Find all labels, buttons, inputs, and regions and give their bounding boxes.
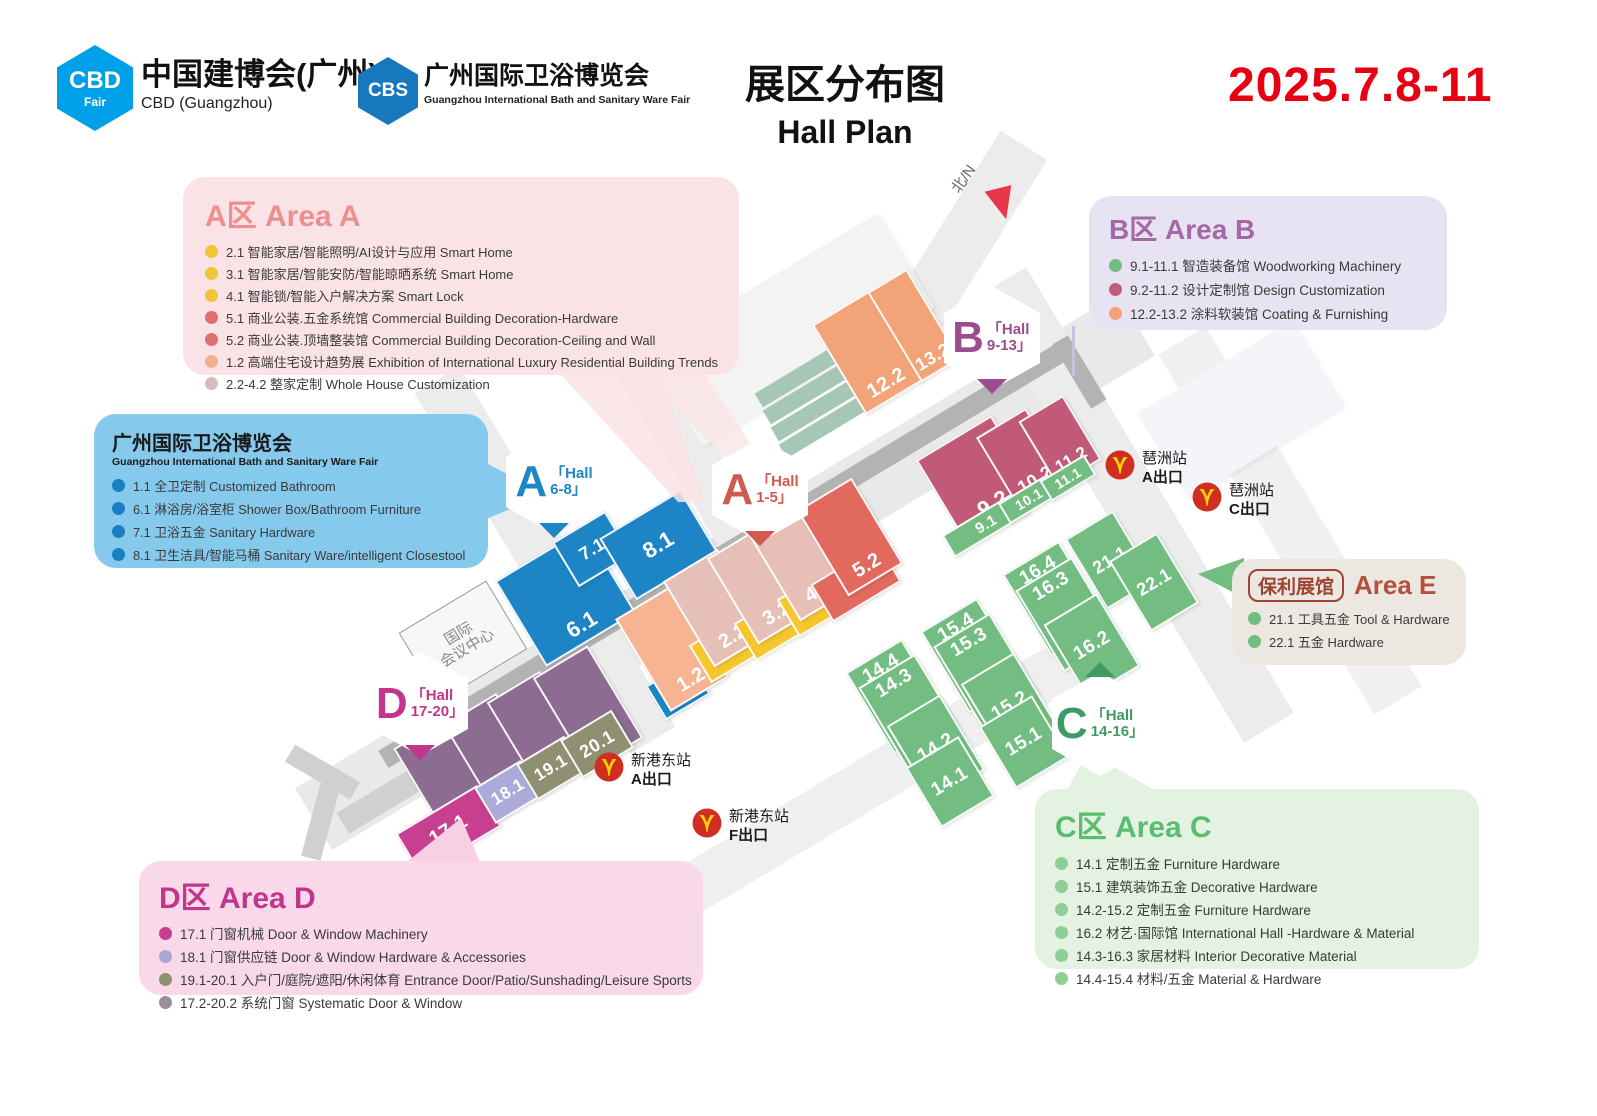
station-label: 琶洲站A出口 — [1142, 450, 1187, 488]
legend-item: 7.1 卫浴五金 Sanitary Hardware — [112, 522, 470, 541]
legend-item: 6.1 淋浴房/浴室柜 Shower Box/Bathroom Furnitur… — [112, 499, 470, 518]
legend-item: 5.1 商业公装.五金系统馆 Commercial Building Decor… — [205, 308, 717, 327]
legend-dot-icon — [112, 525, 125, 538]
legend-item-label: 3.1 智能家居/智能安防/智能晾晒系统 Smart Home — [226, 264, 513, 283]
legend-item-label: 15.1 建筑装饰五金 Decorative Hardware — [1076, 876, 1318, 896]
metro-icon — [692, 808, 722, 838]
legend-dot-icon — [205, 333, 218, 346]
hexagon-shape: A「Hall1-5」 — [712, 438, 808, 542]
area-a-title: A区 Area A — [205, 191, 717, 235]
legend-dot-icon — [205, 289, 218, 302]
station-name: 新港东站 — [729, 808, 789, 827]
badge-letter: C — [1056, 702, 1088, 746]
legend-item: 14.3-16.3 家居材料 Interior Decorative Mater… — [1055, 945, 1459, 965]
legend-item: 9.2-11.2 设计定制馆 Design Customization — [1109, 279, 1427, 299]
legend-item: 19.1-20.1 入户门/庭院/遮阳/休闲体育 Entrance Door/P… — [159, 969, 683, 989]
legend-item-label: 6.1 淋浴房/浴室柜 Shower Box/Bathroom Furnitur… — [133, 499, 421, 518]
station-exit: A出口 — [1142, 469, 1187, 488]
station-label: 新港东站F出口 — [729, 808, 789, 846]
badge-letter: B — [952, 316, 984, 360]
legend-item: 2.2-4.2 整家定制 Whole House Customization — [205, 374, 717, 393]
legend-dot-icon — [112, 502, 125, 515]
legend-item-label: 18.1 门窗供应链 Door & Window Hardware & Acce… — [180, 946, 526, 966]
legend-bath-fair: 广州国际卫浴博览会 Guangzhou International Bath a… — [94, 414, 488, 568]
hall-badge-A-1-5: A「Hall1-5」 — [712, 438, 808, 542]
legend-dot-icon — [205, 355, 218, 368]
area-e-title: Area E — [1354, 570, 1436, 601]
station-name: 琶洲站 — [1142, 450, 1187, 469]
legend-item: 9.1-11.1 智造装备馆 Woodworking Machinery — [1109, 255, 1427, 275]
legend-item-label: 14.3-16.3 家居材料 Interior Decorative Mater… — [1076, 945, 1357, 965]
legend-item: 12.2-13.2 涂料软装馆 Coating & Furnishing — [1109, 303, 1427, 323]
legend-dot-icon — [159, 927, 172, 940]
legend-dot-icon — [1109, 307, 1122, 320]
legend-item-label: 1.2 高端住宅设计趋势展 Exhibition of Internationa… — [226, 352, 718, 371]
legend-dot-icon — [1055, 857, 1068, 870]
area-e-items: 21.1 工具五金 Tool & Hardware22.1 五金 Hardwar… — [1248, 609, 1450, 651]
badge-letter: D — [376, 682, 408, 726]
legend-item-label: 16.2 材艺·国际馆 International Hall -Hardware… — [1076, 922, 1414, 942]
legend-item: 14.2-15.2 定制五金 Furniture Hardware — [1055, 899, 1459, 919]
legend-item-label: 9.1-11.1 智造装备馆 Woodworking Machinery — [1130, 255, 1401, 275]
hall-badge-A-6-8: A「Hall6-8」 — [506, 430, 602, 534]
hall-plan-poster: CBD Fair 中国建博会(广州) CBD (Guangzhou) CBS 广… — [0, 0, 1597, 1116]
station-exit: A出口 — [631, 771, 691, 790]
legend-item-label: 9.2-11.2 设计定制馆 Design Customization — [1130, 279, 1385, 299]
legend-dot-icon — [1109, 283, 1122, 296]
badge-hall-range: 「Hall1-5」 — [756, 474, 799, 507]
badge-hall-range: 「Hall17-20」 — [411, 688, 464, 721]
legend-area-e: 保利展馆 Area E 21.1 工具五金 Tool & Hardware22.… — [1232, 559, 1466, 665]
legend-item-label: 7.1 卫浴五金 Sanitary Hardware — [133, 522, 315, 541]
bath-fair-subtitle: Guangzhou International Bath and Sanitar… — [112, 456, 470, 468]
legend-item-label: 14.2-15.2 定制五金 Furniture Hardware — [1076, 899, 1311, 919]
legend-item: 8.1 卫生洁具/智能马桶 Sanitary Ware/intelligent … — [112, 545, 470, 564]
metro-icon — [1105, 450, 1135, 480]
area-a-items: 2.1 智能家居/智能照明/AI设计与应用 Smart Home3.1 智能家居… — [205, 242, 717, 393]
legend-item: 18.1 门窗供应链 Door & Window Hardware & Acce… — [159, 946, 683, 966]
legend-item-label: 22.1 五金 Hardware — [1269, 632, 1384, 651]
legend-dot-icon — [1055, 949, 1068, 962]
metro-station-琶洲站-A出口: 琶洲站A出口 — [1105, 450, 1187, 488]
hexagon-shape: B「Hall9-13」 — [944, 286, 1040, 390]
legend-dot-icon — [159, 950, 172, 963]
hall-badge-D-17-20: D「Hall17-20」 — [372, 652, 468, 756]
metro-icon — [1192, 482, 1222, 512]
legend-item-label: 14.1 定制五金 Furniture Hardware — [1076, 853, 1280, 873]
legend-dot-icon — [205, 245, 218, 258]
legend-dot-icon — [1055, 903, 1068, 916]
legend-item-label: 17.1 门窗机械 Door & Window Machinery — [180, 923, 428, 943]
badge-hall-range: 「Hall6-8」 — [550, 466, 593, 499]
legend-item-label: 21.1 工具五金 Tool & Hardware — [1269, 609, 1450, 628]
legend-dot-icon — [1248, 612, 1261, 625]
legend-dot-icon — [1109, 259, 1122, 272]
legend-dot-icon — [112, 479, 125, 492]
bath-fair-title: 广州国际卫浴博览会 — [112, 427, 470, 456]
legend-area-c: C区 Area C 14.1 定制五金 Furniture Hardware15… — [1035, 789, 1479, 969]
badge-letter: A — [721, 468, 753, 512]
area-e-hall-badge: 保利展馆 — [1248, 569, 1344, 602]
legend-item-label: 5.1 商业公装.五金系统馆 Commercial Building Decor… — [226, 308, 618, 327]
legend-item-label: 2.2-4.2 整家定制 Whole House Customization — [226, 374, 490, 393]
station-name: 琶洲站 — [1229, 482, 1274, 501]
legend-dot-icon — [205, 311, 218, 324]
station-exit: F出口 — [729, 827, 789, 846]
legend-item: 4.1 智能锁/智能入户解决方案 Smart Lock — [205, 286, 717, 305]
badge-hall-range: 「Hall14-16」 — [1091, 708, 1144, 741]
legend-area-a: A区 Area A 2.1 智能家居/智能照明/AI设计与应用 Smart Ho… — [183, 177, 739, 375]
legend-area-b: B区 Area B 9.1-11.1 智造装备馆 Woodworking Mac… — [1089, 196, 1447, 330]
legend-item: 21.1 工具五金 Tool & Hardware — [1248, 609, 1450, 628]
area-b-items: 9.1-11.1 智造装备馆 Woodworking Machinery9.2-… — [1109, 255, 1427, 323]
legend-dot-icon — [159, 973, 172, 986]
station-label: 琶洲站C出口 — [1229, 482, 1274, 520]
legend-item-label: 2.1 智能家居/智能照明/AI设计与应用 Smart Home — [226, 242, 513, 261]
legend-dot-icon — [205, 377, 218, 390]
metro-station-新港东站-A出口: 新港东站A出口 — [594, 752, 691, 790]
legend-item-label: 4.1 智能锁/智能入户解决方案 Smart Lock — [226, 286, 464, 305]
station-exit: C出口 — [1229, 501, 1274, 520]
area-b-connector — [1072, 326, 1075, 376]
metro-icon — [594, 752, 624, 782]
legend-item: 1.2 高端住宅设计趋势展 Exhibition of Internationa… — [205, 352, 717, 371]
legend-item-label: 1.1 全卫定制 Customized Bathroom — [133, 476, 336, 495]
legend-item-label: 12.2-13.2 涂料软装馆 Coating & Furnishing — [1130, 303, 1388, 323]
legend-dot-icon — [1055, 926, 1068, 939]
legend-area-d: D区 Area D 17.1 门窗机械 Door & Window Machin… — [139, 861, 703, 995]
station-name: 新港东站 — [631, 752, 691, 771]
legend-item-label: 8.1 卫生洁具/智能马桶 Sanitary Ware/intelligent … — [133, 545, 465, 564]
badge-hall-range: 「Hall9-13」 — [987, 322, 1032, 355]
bath-fair-items: 1.1 全卫定制 Customized Bathroom6.1 淋浴房/浴室柜 … — [112, 476, 470, 564]
legend-item-label: 19.1-20.1 入户门/庭院/遮阳/休闲体育 Entrance Door/P… — [180, 969, 692, 989]
legend-dot-icon — [205, 267, 218, 280]
area-d-items: 17.1 门窗机械 Door & Window Machinery18.1 门窗… — [159, 923, 683, 1012]
legend-item: 1.1 全卫定制 Customized Bathroom — [112, 476, 470, 495]
hall-badge-C-14-16: C「Hall14-16」 — [1052, 672, 1148, 776]
hexagon-shape: A「Hall6-8」 — [506, 430, 602, 534]
legend-dot-icon — [1248, 635, 1261, 648]
badge-letter: A — [515, 460, 547, 504]
metro-station-新港东站-F出口: 新港东站F出口 — [692, 808, 789, 846]
legend-item-label: 17.2-20.2 系统门窗 Systematic Door & Window — [180, 992, 462, 1012]
station-label: 新港东站A出口 — [631, 752, 691, 790]
hexagon-shape: D「Hall17-20」 — [372, 652, 468, 756]
hexagon-shape: C「Hall14-16」 — [1052, 672, 1148, 776]
hall-badge-B-9-13: B「Hall9-13」 — [944, 286, 1040, 390]
legend-dot-icon — [1055, 972, 1068, 985]
legend-dot-icon — [159, 996, 172, 1009]
metro-station-琶洲站-C出口: 琶洲站C出口 — [1192, 482, 1274, 520]
legend-item: 17.1 门窗机械 Door & Window Machinery — [159, 923, 683, 943]
legend-item: 15.1 建筑装饰五金 Decorative Hardware — [1055, 876, 1459, 896]
legend-item: 16.2 材艺·国际馆 International Hall -Hardware… — [1055, 922, 1459, 942]
legend-item-label: 14.4-15.4 材料/五金 Material & Hardware — [1076, 968, 1321, 988]
legend-item-label: 5.2 商业公装.顶墙整装馆 Commercial Building Decor… — [226, 330, 655, 349]
area-d-title: D区 Area D — [159, 873, 683, 917]
legend-item: 3.1 智能家居/智能安防/智能晾晒系统 Smart Home — [205, 264, 717, 283]
area-b-title: B区 Area B — [1109, 208, 1427, 248]
legend-item: 2.1 智能家居/智能照明/AI设计与应用 Smart Home — [205, 242, 717, 261]
legend-dot-icon — [112, 548, 125, 561]
area-c-items: 14.1 定制五金 Furniture Hardware15.1 建筑装饰五金 … — [1055, 853, 1459, 988]
legend-item: 22.1 五金 Hardware — [1248, 632, 1450, 651]
legend-item: 14.4-15.4 材料/五金 Material & Hardware — [1055, 968, 1459, 988]
area-c-title: C区 Area C — [1055, 802, 1459, 846]
legend-item: 5.2 商业公装.顶墙整装馆 Commercial Building Decor… — [205, 330, 717, 349]
legend-item: 14.1 定制五金 Furniture Hardware — [1055, 853, 1459, 873]
legend-dot-icon — [1055, 880, 1068, 893]
legend-item: 17.2-20.2 系统门窗 Systematic Door & Window — [159, 992, 683, 1012]
